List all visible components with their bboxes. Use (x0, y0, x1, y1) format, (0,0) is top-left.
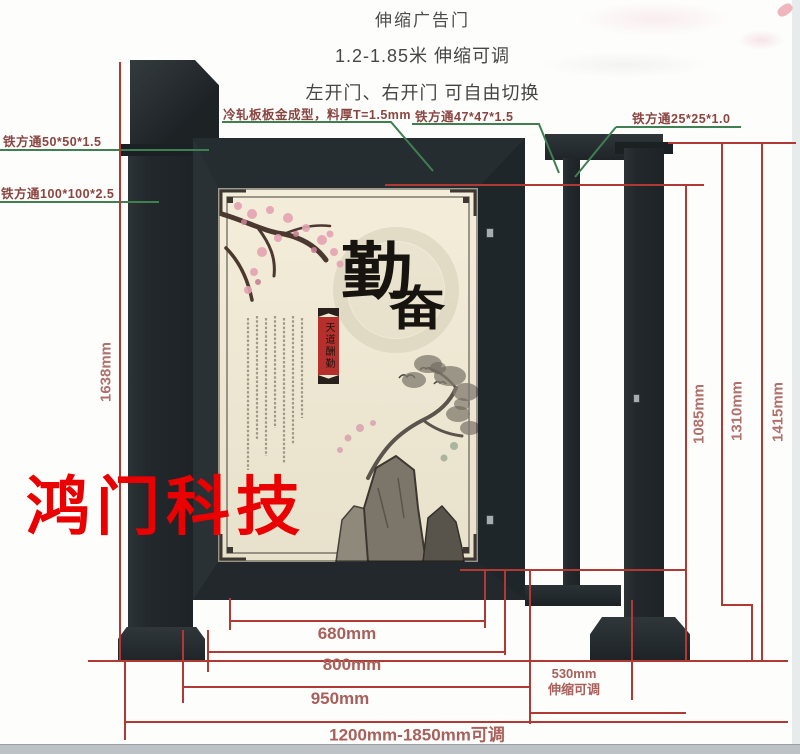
left-pillar-base (118, 627, 205, 661)
door-hinge-bottom (486, 515, 494, 525)
dim-side-section: 530mm 伸缩可调 (538, 666, 610, 698)
callout-tube-100: 铁方通100*100*2.5 (1, 183, 114, 202)
dim-door-width: 800mm (323, 655, 382, 675)
smudge (738, 30, 784, 50)
product-title-block: 伸缩广告门 1.2-1.85米 伸缩可调 左开门、右开门 可自由切换 (250, 6, 595, 105)
dim-side-note: 伸缩可调 (538, 682, 610, 698)
left-pillar-cap (120, 144, 200, 156)
dim-side-width: 530mm (538, 666, 610, 682)
product-name: 伸缩广告门 (250, 6, 595, 31)
photo-right-edge (792, 0, 800, 745)
right-pillar-base (590, 617, 690, 660)
photo-bottom-edge (0, 744, 800, 754)
right-pillar (624, 148, 664, 617)
pillar-lock (633, 394, 640, 403)
dim-total-width-range: 1200mm-1850mm可调 (329, 721, 505, 746)
banner-top-cap (318, 308, 339, 317)
motor-housing (130, 60, 219, 144)
dim-panel-width: 680mm (318, 624, 377, 644)
dim-door-outer-width: 950mm (311, 689, 370, 709)
callout-cold-rolled-sheet: 冷轧板板金成型，料厚T=1.5mm (223, 104, 411, 123)
banner-text: 天道酬勤 (318, 317, 339, 375)
watermark: 鸿门科技 (26, 456, 306, 548)
telescopic-bottom-rail (525, 585, 621, 606)
dim-total-height: 1638mm (98, 342, 115, 402)
telescopic-bar (563, 158, 580, 590)
dim-inner-section-height: 1085mm (691, 384, 708, 444)
dim-frame-height: 1310mm (729, 381, 746, 441)
callout-tube-50: 铁方通50*50*1.5 (3, 131, 101, 150)
calligraphy-fen: 奋 (389, 286, 445, 333)
door-hinge-top (486, 228, 494, 238)
left-pillar (128, 156, 193, 627)
seal-banner: 天道酬勤 (318, 308, 339, 384)
smudge (580, 2, 730, 36)
opening-direction-note: 左开门、右开门 可自由切换 (250, 79, 595, 105)
advertising-gate-diagram: 伸缩广告门 1.2-1.85米 伸缩可调 左开门、右开门 可自由切换 (0, 0, 800, 754)
size-range: 1.2-1.85米 伸缩可调 (250, 42, 595, 68)
callout-tube-25: 铁方通25*25*1.0 (632, 108, 730, 127)
dim-pillar-height: 1415mm (770, 382, 787, 442)
callout-tube-47: 铁方通47*47*1.5 (415, 106, 513, 125)
banner-bottom-cap (318, 375, 339, 384)
